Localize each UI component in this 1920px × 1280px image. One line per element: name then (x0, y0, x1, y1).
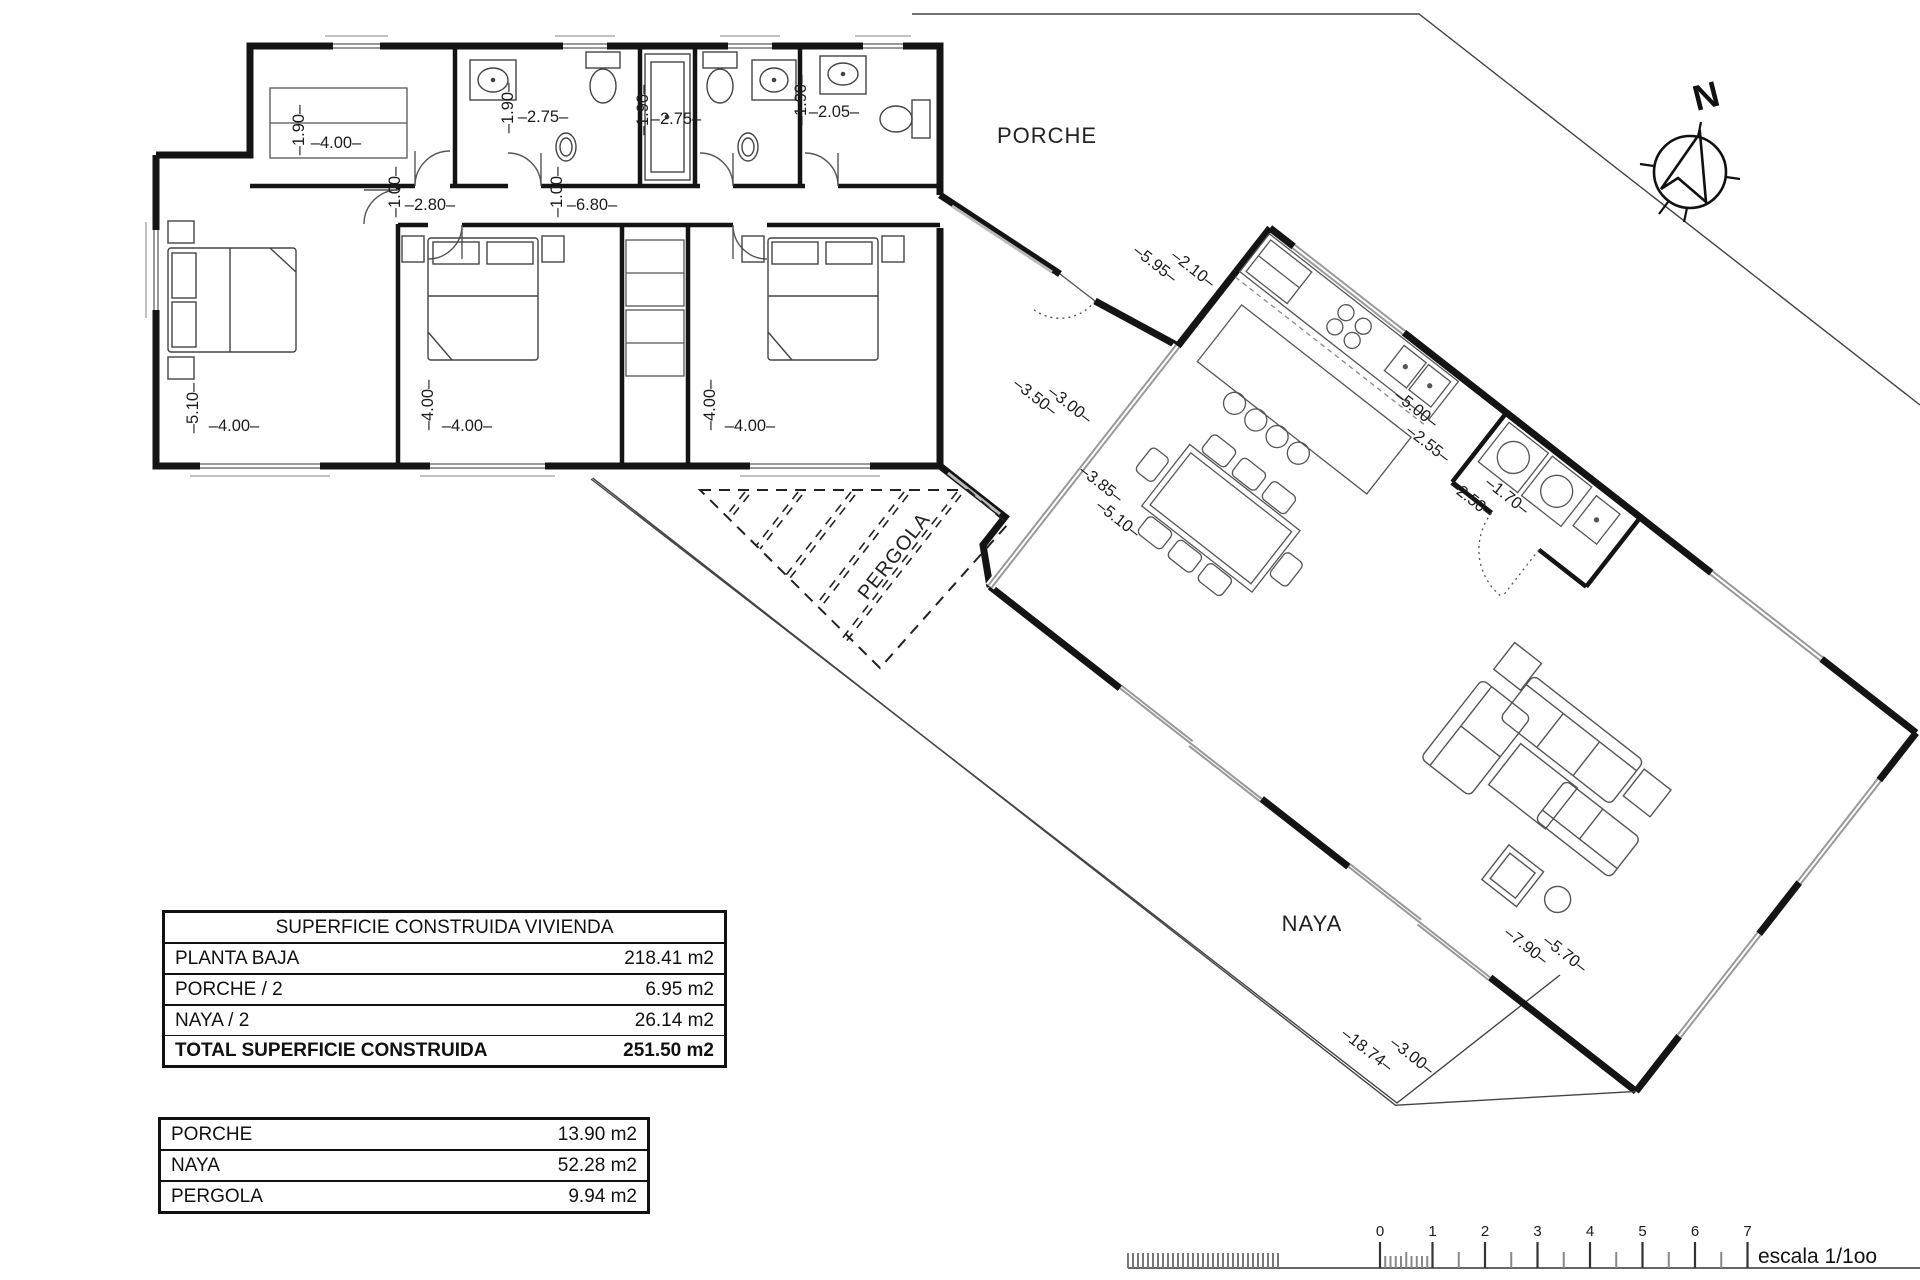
dimension-label: –1.00– (548, 166, 566, 217)
room-label-naya: NAYA (1282, 911, 1343, 936)
bed-1 (168, 221, 296, 379)
scale-number: 7 (1743, 1223, 1751, 1240)
dimension-label: –3.00– (1387, 1033, 1438, 1079)
floor-plan-drawing: N 01234567 escala 1/1oo –1.90––4.00––1.9… (0, 0, 1920, 1280)
table-body: PORCHE13.90 m2NAYA52.28 m2PERGOLA9.94 m2 (161, 1120, 647, 1211)
dimension-label: –1.90– (792, 74, 810, 125)
total-label: TOTAL SUPERFICIE CONSTRUIDA (175, 1040, 487, 1062)
table-body: PLANTA BAJA218.41 m2PORCHE / 26.95 m2NAY… (165, 944, 724, 1035)
dimension-label: –2.75– (651, 110, 702, 128)
area-table-exterior: PORCHE13.90 m2NAYA52.28 m2PERGOLA9.94 m2 (158, 1117, 650, 1214)
room-label-porche: PORCHE (997, 123, 1097, 148)
row-value: 26.14 m2 (635, 1010, 714, 1032)
dimension-label: –1.90– (290, 104, 308, 155)
dimension-label: –2.80– (405, 196, 456, 214)
row-label: NAYA / 2 (175, 1010, 249, 1032)
north-compass (1640, 122, 1740, 222)
dimension-label: –4.00– (419, 379, 437, 430)
row-label: PERGOLA (171, 1186, 263, 1208)
dimension-label: –5.10– (1093, 496, 1144, 542)
dimension-label: –1.90– (499, 82, 517, 133)
kitchen-counter (1235, 234, 1458, 425)
row-label: PORCHE / 2 (175, 979, 283, 1001)
bathroom-2-fixtures (703, 52, 796, 161)
scale-number: 6 (1691, 1223, 1699, 1240)
dimension-label: –1.90– (634, 84, 652, 135)
living-wing (593, 0, 1920, 1220)
wing-windows (983, 221, 1920, 1098)
dimension-label: –2.05– (809, 103, 860, 121)
compass-n-label: N (1688, 73, 1723, 119)
dimension-label: –4.00– (701, 379, 719, 430)
row-value: 218.41 m2 (624, 948, 714, 970)
dimension-label: –6.80– (567, 196, 618, 214)
row-label: NAYA (171, 1155, 220, 1177)
table-row: PERGOLA9.94 m2 (161, 1182, 647, 1211)
total-value: 251.50 m2 (623, 1040, 714, 1062)
scale-label: escala 1/1oo (1758, 1245, 1877, 1268)
site-boundary-lines (591, 14, 1920, 1103)
bed-3 (742, 236, 904, 360)
row-label: PLANTA BAJA (175, 948, 299, 970)
scale-number: 3 (1533, 1223, 1541, 1240)
floor-plan-page: N 01234567 escala 1/1oo –1.90––4.00––1.9… (0, 0, 1920, 1280)
dimension-label: –1.00– (386, 166, 404, 217)
row-value: 52.28 m2 (558, 1155, 637, 1177)
table-title: SUPERFICIE CONSTRUIDA VIVIENDA (165, 913, 724, 944)
scale-number: 4 (1586, 1223, 1594, 1240)
table-row: NAYA52.28 m2 (161, 1151, 647, 1182)
room-label-pergola: PERGOLA (854, 509, 935, 604)
closet-column (626, 240, 684, 376)
dimension-label: –4.00– (442, 417, 493, 435)
dimension-label: –4.00– (725, 417, 776, 435)
dimension-label: –18.74– (1338, 1025, 1397, 1076)
dimension-label: –4.00– (209, 417, 260, 435)
living-room-furniture (1385, 641, 1688, 941)
table-total-row: TOTAL SUPERFICIE CONSTRUIDA 251.50 m2 (165, 1035, 724, 1065)
bed-2 (402, 236, 564, 360)
dimension-label: –5.10– (184, 382, 202, 433)
bathroom-1-fixtures (470, 52, 620, 161)
row-value: 6.95 m2 (645, 979, 714, 1001)
dimension-label: –4.00– (311, 134, 362, 152)
table-row: NAYA / 226.14 m2 (165, 1006, 724, 1035)
bedroom-wing (146, 36, 940, 476)
dimension-label: –2.75– (518, 108, 569, 126)
table-row: PLANTA BAJA218.41 m2 (165, 944, 724, 975)
table-row: PORCHE13.90 m2 (161, 1120, 647, 1151)
wc-fixtures (820, 56, 930, 138)
row-label: PORCHE (171, 1124, 252, 1146)
scale-number: 1 (1428, 1223, 1436, 1240)
kitchen-island (1184, 305, 1411, 511)
row-value: 9.94 m2 (568, 1186, 637, 1208)
scale-number: 5 (1638, 1223, 1646, 1240)
scale-number: 2 (1481, 1223, 1489, 1240)
pergola (700, 490, 1008, 668)
row-value: 13.90 m2 (558, 1124, 637, 1146)
scale-number: 0 (1376, 1223, 1384, 1240)
area-table-vivienda: SUPERFICIE CONSTRUIDA VIVIENDA PLANTA BA… (162, 910, 727, 1068)
table-row: PORCHE / 26.95 m2 (165, 975, 724, 1006)
